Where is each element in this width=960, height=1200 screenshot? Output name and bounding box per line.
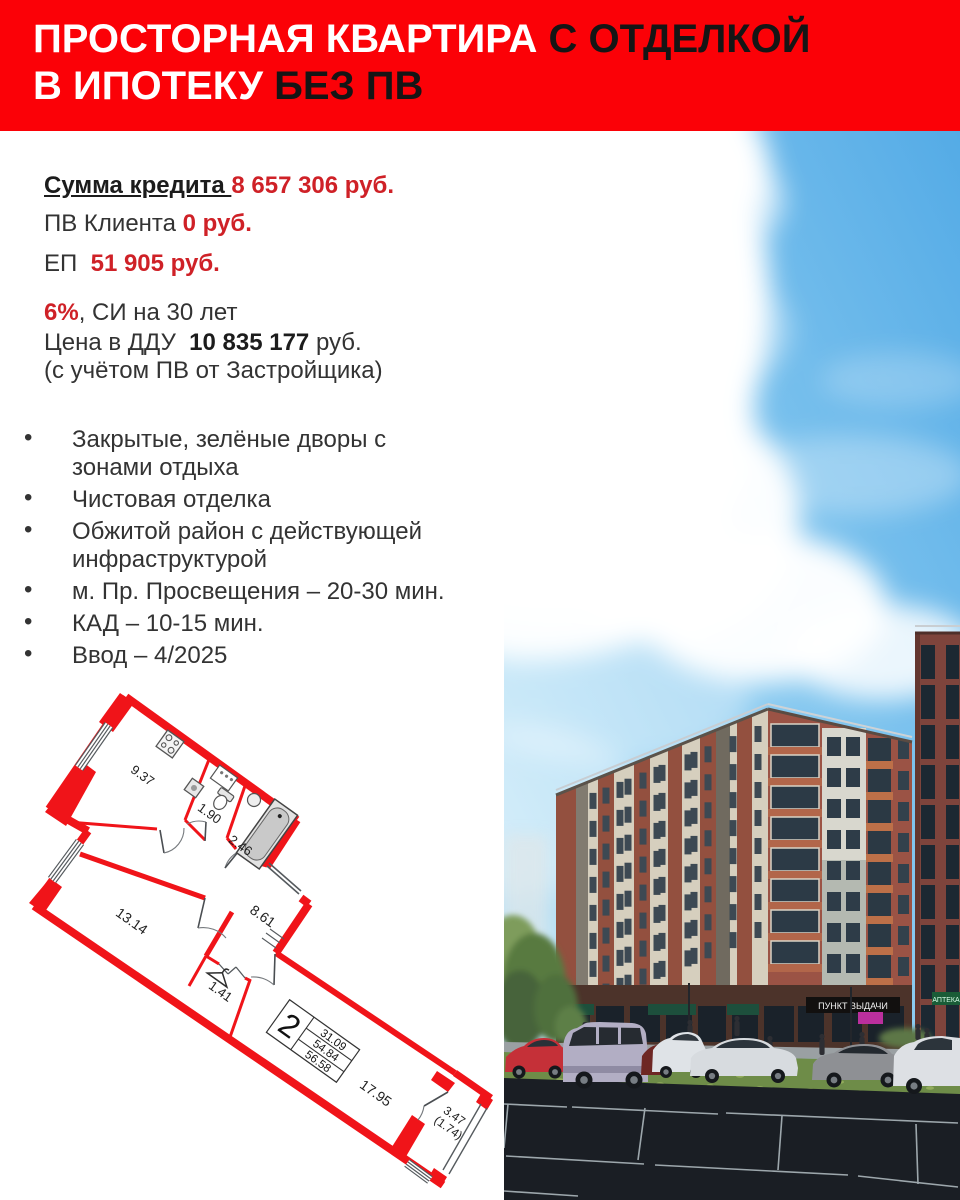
svg-text:ПУНКТ ВЫДАЧИ: ПУНКТ ВЫДАЧИ — [818, 1001, 888, 1011]
svg-text:АПТЕКА: АПТЕКА — [932, 997, 960, 1004]
